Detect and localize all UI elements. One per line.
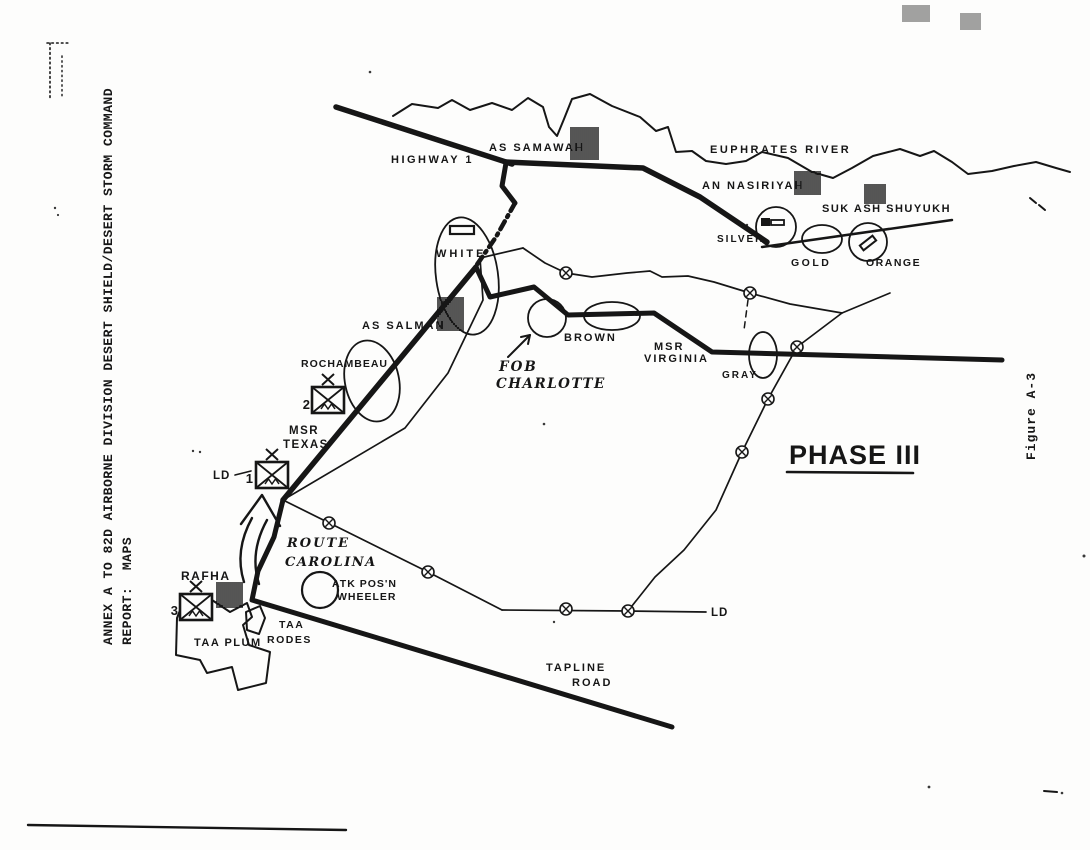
objective-rochambeau-ellipse bbox=[337, 335, 407, 426]
label-rafha: RAFHA bbox=[181, 569, 231, 583]
label-objective-white: WHITE bbox=[436, 248, 486, 260]
label-msr-texas-line1: MSR bbox=[289, 425, 319, 437]
tapline-road bbox=[252, 500, 672, 727]
phase-line-dashes bbox=[744, 300, 748, 330]
fob-charlotte-arrow bbox=[508, 335, 530, 357]
label-objective-silver: SILVER bbox=[717, 234, 764, 245]
label-ld-west: LD bbox=[213, 470, 230, 482]
label-tapline-road-line2: ROAD bbox=[572, 677, 612, 689]
road-spur bbox=[502, 163, 515, 203]
unit-symbol-1st-brigade bbox=[256, 449, 288, 488]
label-suk-ash-shuyukh: SUK ASH SHUYUKH bbox=[822, 203, 951, 215]
scan-artifact-dash bbox=[1044, 791, 1057, 792]
unit-2-number: 2 bbox=[303, 397, 310, 412]
checkpoint-symbol bbox=[622, 605, 634, 617]
city-rafha-icon bbox=[216, 582, 243, 608]
scan-artifact-slash bbox=[1030, 198, 1045, 210]
airstrip-icon bbox=[860, 236, 876, 251]
label-euphrates-river: EUPHRATES RIVER bbox=[710, 144, 851, 156]
label-route-carolina-line1: ROUTE bbox=[286, 536, 350, 551]
figure-caption: Figure A-3 bbox=[1024, 372, 1039, 460]
phase-title-group: PHASE III bbox=[787, 440, 921, 473]
scan-artifact-specks bbox=[54, 71, 1086, 795]
label-an-nasiriyah: AN NASIRIYAH bbox=[702, 180, 804, 192]
label-as-salman: AS SALMAN bbox=[362, 320, 445, 332]
label-msr-texas-line2: TEXAS bbox=[283, 439, 329, 451]
label-taa-plum: TAA PLUM bbox=[194, 637, 262, 649]
annex-title-line1: ANNEX A TO 82D AIRBORNE DIVISION DESERT … bbox=[101, 88, 116, 645]
msr-virginia-road bbox=[476, 267, 1002, 360]
label-as-samawah: AS SAMAWAH bbox=[489, 142, 585, 154]
checkpoint-symbol bbox=[736, 446, 748, 458]
label-objective-gray: GRAY bbox=[722, 370, 758, 381]
scan-artifact-smudge bbox=[960, 13, 981, 30]
phase-iii-operations-map: HIGHWAY 1 AS SAMAWAH EUPHRATES RIVER AN … bbox=[0, 0, 1090, 850]
label-objective-brown: BROWN bbox=[564, 332, 617, 344]
checkpoint-symbol bbox=[560, 603, 572, 615]
checkpoint-symbol bbox=[560, 267, 572, 279]
airstrip-icon bbox=[761, 218, 784, 226]
label-tapline-road-line1: TAPLINE bbox=[546, 662, 606, 674]
label-atk-posn-line1: ATK POS'N bbox=[332, 578, 397, 590]
unit-3-number: 3 bbox=[171, 603, 178, 618]
scanned-map-page: HIGHWAY 1 AS SAMAWAH EUPHRATES RIVER AN … bbox=[0, 0, 1090, 850]
city-suk-ash-shuyukh-icon bbox=[864, 184, 886, 204]
label-objective-gold: GOLD bbox=[791, 257, 831, 269]
label-ld-east: LD bbox=[711, 607, 728, 619]
ld-south-segment bbox=[502, 610, 706, 612]
checkpoint-symbol bbox=[791, 341, 803, 353]
phase-line-stub bbox=[842, 293, 890, 313]
checkpoint-symbol bbox=[422, 566, 434, 578]
annex-title-line2: REPORT: MAPS bbox=[120, 537, 135, 645]
highway-east-road bbox=[505, 162, 767, 242]
label-msr-virginia-line1: MSR bbox=[654, 341, 684, 353]
objectives-road-line bbox=[762, 220, 952, 247]
unit-symbol-2nd-brigade bbox=[312, 374, 344, 413]
fob-charlotte-circle bbox=[528, 299, 566, 337]
scan-artifact-smudge bbox=[902, 5, 930, 22]
label-objective-orange: ORANGE bbox=[866, 257, 921, 269]
phase-title: PHASE III bbox=[789, 440, 921, 470]
phase-title-underline bbox=[787, 472, 913, 473]
label-msr-virginia-line2: VIRGINIA bbox=[644, 353, 709, 365]
label-fob-line1: FOB bbox=[498, 359, 538, 375]
scan-artifact-bottom-rule bbox=[28, 825, 346, 830]
unit-1-number: 1 bbox=[246, 471, 253, 486]
euphrates-river-line bbox=[393, 94, 1070, 178]
unit-symbol-3rd-brigade bbox=[180, 581, 212, 620]
label-route-carolina-line2: CAROLINA bbox=[285, 555, 377, 570]
label-highway-1: HIGHWAY 1 bbox=[391, 154, 474, 166]
airstrip-icon bbox=[450, 226, 474, 234]
label-taa-rodes-line1: TAA bbox=[279, 619, 304, 631]
label-atk-posn-line2: WHEELER bbox=[337, 591, 397, 603]
checkpoint-symbol bbox=[744, 287, 756, 299]
label-objective-rochambeau: ROCHAMBEAU bbox=[301, 358, 388, 370]
label-taa-rodes-line2: RODES bbox=[267, 634, 312, 646]
checkpoint-symbol bbox=[323, 517, 335, 529]
label-fob-line2: CHARLOTTE bbox=[496, 376, 606, 392]
checkpoint-symbol bbox=[762, 393, 774, 405]
scan-artifacts bbox=[28, 5, 1086, 830]
